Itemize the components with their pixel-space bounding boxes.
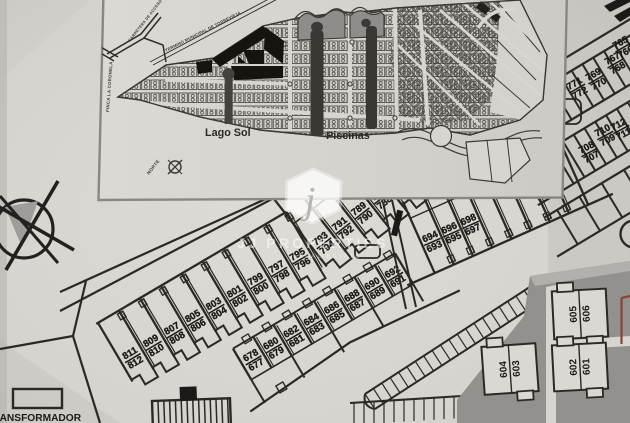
svg-text:Lago Sol: Lago Sol (205, 127, 251, 139)
svg-text:Piscinas: Piscinas (326, 130, 370, 142)
svg-text:606: 606 (581, 305, 593, 323)
svg-text:601: 601 (581, 358, 593, 376)
svg-text:603: 603 (511, 359, 523, 377)
svg-text:REAL ESTATE: REAL ESTATE (299, 254, 362, 260)
svg-text:604: 604 (498, 360, 510, 378)
svg-text:TRANSFORMADOR: TRANSFORMADOR (0, 413, 82, 423)
svg-text:602: 602 (568, 358, 580, 376)
svg-text:605: 605 (568, 305, 580, 323)
svg-text:JJ PROPERTIES: JJ PROPERTIES (237, 235, 388, 251)
